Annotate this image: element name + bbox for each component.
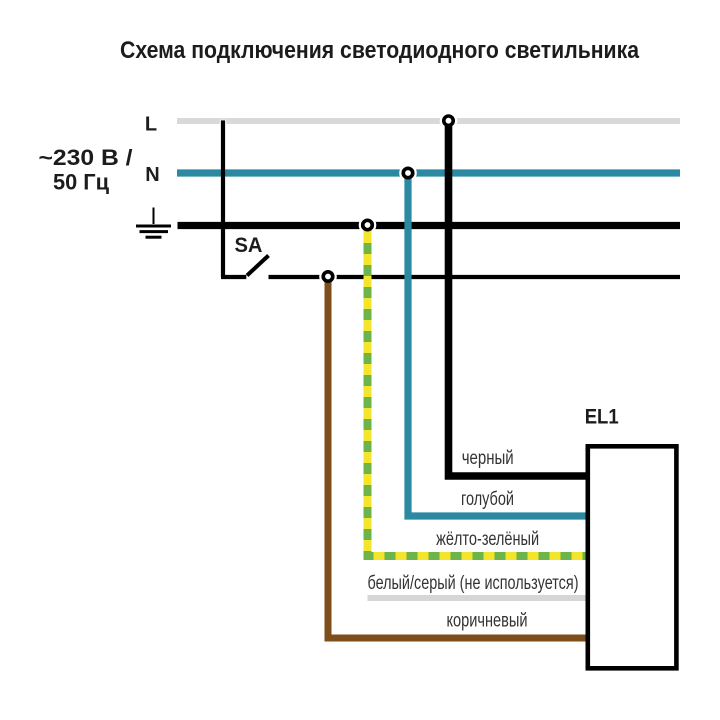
svg-text:EL1: EL1: [585, 405, 619, 429]
svg-text:SA: SA: [235, 234, 263, 257]
svg-text:N: N: [145, 164, 159, 186]
svg-text:голубой: голубой: [461, 489, 514, 510]
svg-text:коричневый: коричневый: [447, 611, 528, 632]
svg-text:белый/серый (не используется): белый/серый (не используется): [368, 573, 579, 594]
svg-text:жёлто-зелёный: жёлто-зелёный: [436, 529, 539, 550]
svg-text:50 Гц: 50 Гц: [53, 170, 109, 195]
svg-text:~230 В /: ~230 В /: [39, 145, 133, 170]
svg-text:L: L: [145, 114, 157, 136]
svg-text:Схема подключения светодиодног: Схема подключения светодиодного светильн…: [120, 37, 640, 64]
svg-text:черный: черный: [462, 448, 514, 469]
